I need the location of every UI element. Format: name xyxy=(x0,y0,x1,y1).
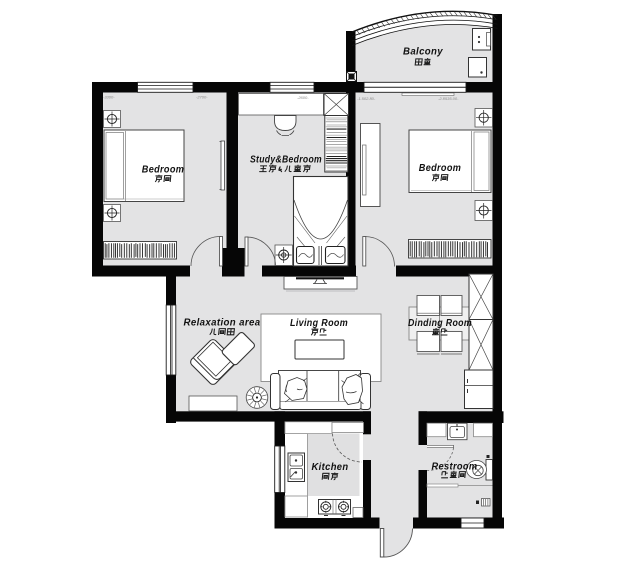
svg-text:Study&Bedroom: Study&Bedroom xyxy=(250,154,322,166)
svg-text:-2.8535.00-: -2.8535.00- xyxy=(438,96,459,101)
svg-text:Kitchen: Kitchen xyxy=(312,461,349,473)
svg-text:-3300-: -3300- xyxy=(103,95,115,100)
svg-text:Balcony: Balcony xyxy=(403,46,444,58)
svg-text:Dinding Room: Dinding Room xyxy=(408,317,472,329)
svg-text:Restroom: Restroom xyxy=(432,460,478,472)
svg-text:-1.502.80-: -1.502.80- xyxy=(357,96,376,101)
svg-text:-2600-: -2600- xyxy=(297,95,309,100)
svg-text:-2700-: -2700- xyxy=(196,95,208,100)
svg-text:Living Room: Living Room xyxy=(290,317,348,329)
svg-text:Relaxation area: Relaxation area xyxy=(184,317,261,329)
svg-text:Bedroom: Bedroom xyxy=(142,164,185,176)
svg-text:Bedroom: Bedroom xyxy=(419,162,462,174)
